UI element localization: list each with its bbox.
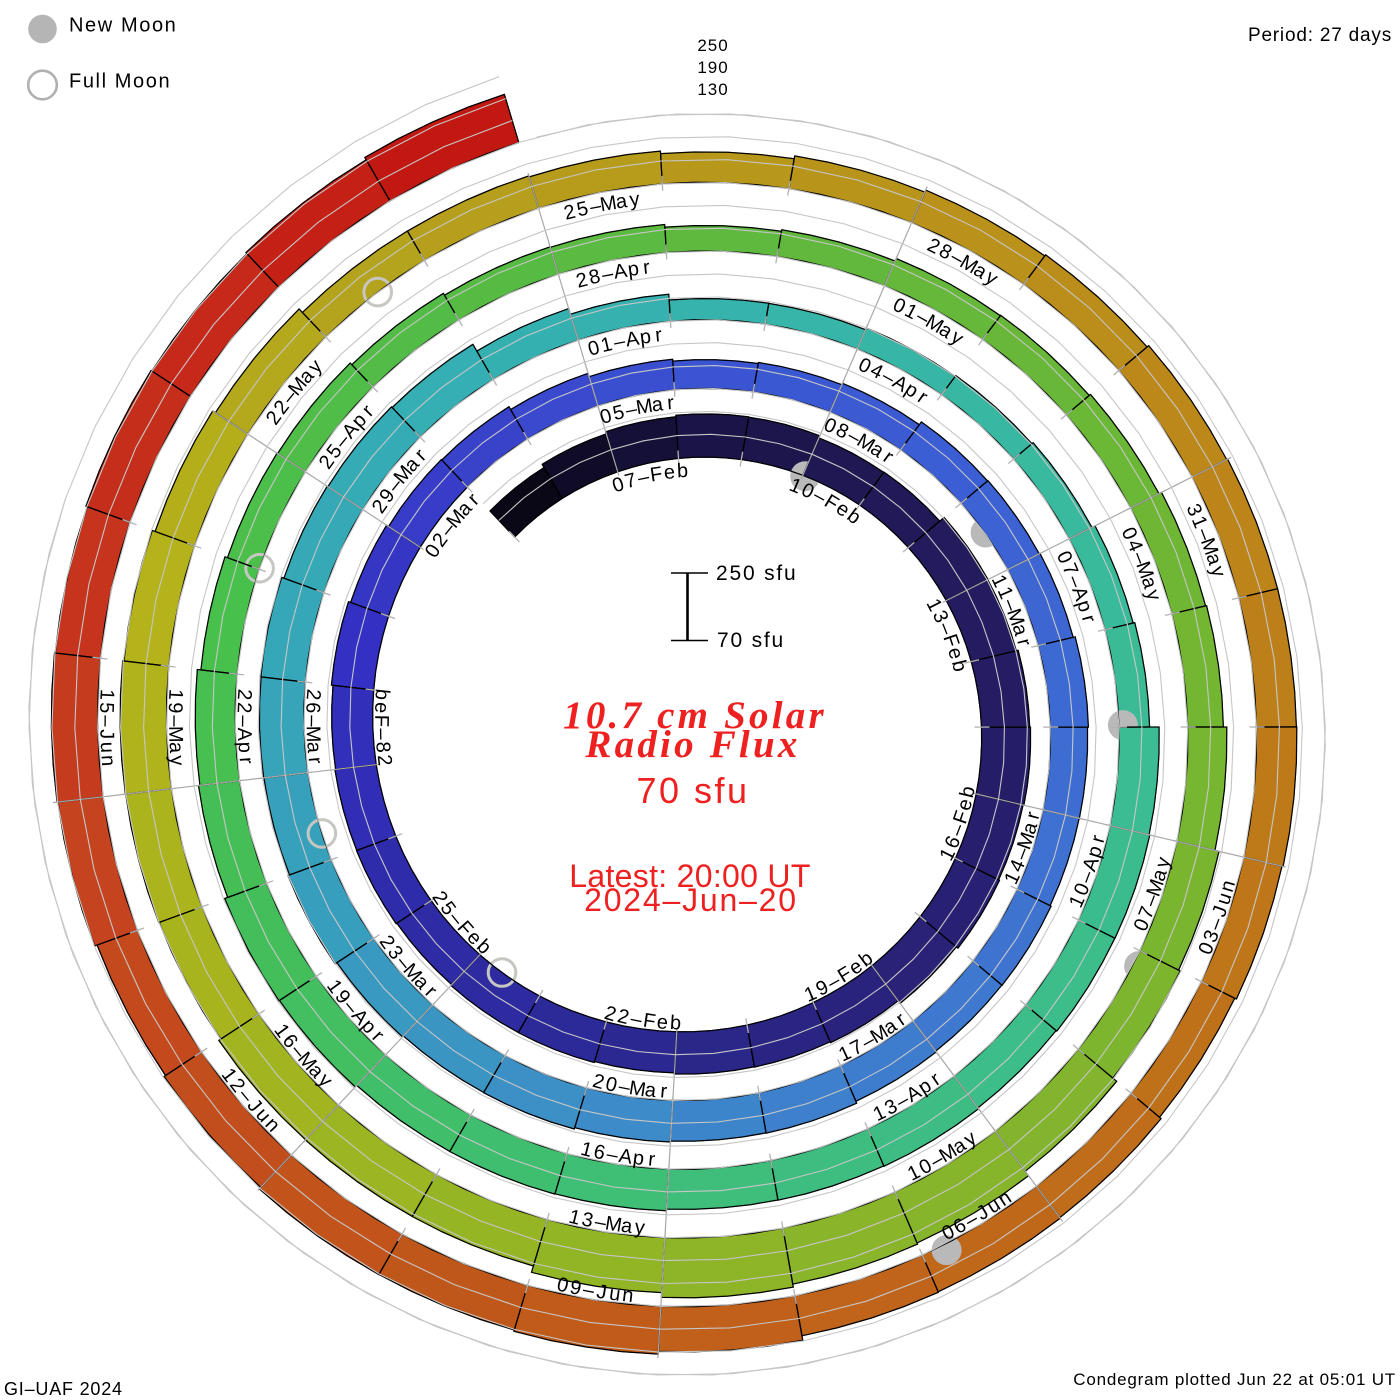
svg-text:e: e (656, 1011, 669, 1034)
svg-text:6: 6 (301, 702, 324, 714)
svg-text:2024–Jun–20: 2024–Jun–20 (584, 882, 798, 918)
svg-text:p: p (233, 741, 255, 753)
svg-text:A: A (233, 727, 255, 741)
svg-text:u: u (96, 741, 118, 753)
svg-text:n: n (97, 754, 120, 766)
svg-text:190: 190 (697, 58, 728, 77)
svg-text:2: 2 (232, 702, 254, 714)
svg-text:e: e (370, 701, 393, 713)
svg-text:2: 2 (373, 754, 396, 767)
svg-text:Radio Flux: Radio Flux (584, 723, 800, 766)
svg-text:y: y (165, 755, 188, 766)
svg-text:e: e (663, 461, 676, 484)
svg-text:GI–UAF 2024: GI–UAF 2024 (4, 1379, 123, 1399)
svg-text:b: b (370, 688, 393, 701)
svg-text:9: 9 (164, 702, 186, 714)
svg-text:M: M (302, 726, 324, 743)
svg-text:M: M (164, 726, 186, 743)
svg-text:J: J (95, 729, 117, 739)
svg-text:2: 2 (233, 688, 256, 701)
svg-text:250: 250 (697, 36, 728, 55)
svg-text:a: a (302, 741, 325, 754)
svg-text:250 sfu: 250 sfu (716, 562, 798, 585)
svg-text:a: a (165, 741, 187, 754)
svg-text:130: 130 (697, 80, 728, 99)
svg-text:F: F (370, 715, 392, 728)
svg-text:–: – (95, 715, 117, 727)
svg-text:–: – (370, 728, 392, 740)
svg-text:2: 2 (302, 688, 325, 701)
svg-text:8: 8 (371, 741, 394, 754)
svg-text:New Moon: New Moon (69, 15, 177, 37)
svg-text:b: b (677, 460, 689, 482)
svg-text:1: 1 (164, 688, 187, 700)
svg-text:Period: 27 days: Period: 27 days (1248, 25, 1392, 46)
svg-text:Condegram plotted Jun 22 at 05: Condegram plotted Jun 22 at 05:01 UT (1073, 1370, 1396, 1389)
svg-text:5: 5 (95, 702, 117, 714)
svg-text:70 sfu: 70 sfu (636, 770, 749, 811)
svg-text:70 sfu: 70 sfu (717, 629, 785, 652)
svg-text:b: b (669, 1012, 681, 1035)
svg-text:Full Moon: Full Moon (69, 71, 171, 93)
svg-text:–: – (233, 715, 255, 727)
svg-text:1: 1 (95, 688, 118, 700)
